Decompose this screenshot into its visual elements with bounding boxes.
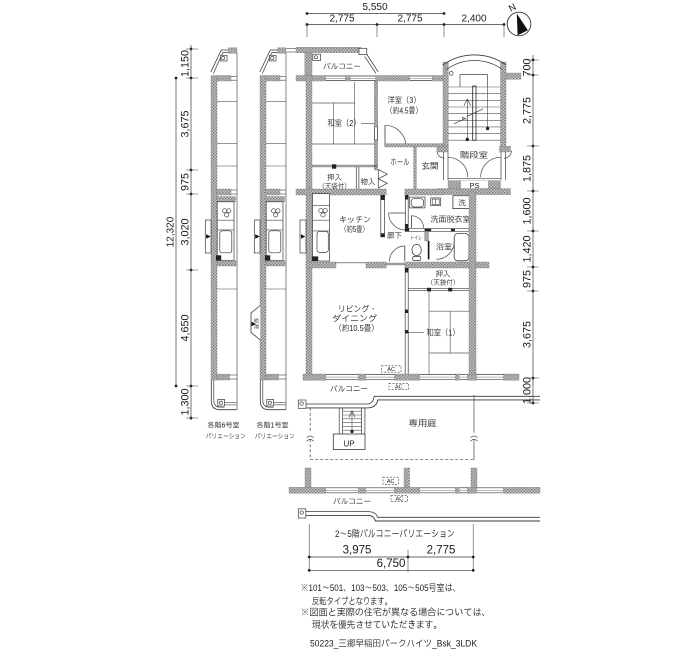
svg-text:和室（1）: 和室（1） <box>427 327 460 340</box>
svg-text:現状を優先させていただきます。: 現状を優先させていただきます。 <box>312 619 442 633</box>
svg-text:4,650: 4,650 <box>180 314 192 341</box>
svg-text:※101〜501、103〜503、105〜505号室は、: ※101〜501、103〜503、105〜505号室は、 <box>301 582 461 596</box>
svg-text:2,775: 2,775 <box>522 97 534 124</box>
svg-text:2,775: 2,775 <box>427 545 456 557</box>
svg-text:バリエーション: バリエーション <box>255 432 295 442</box>
svg-text:3,675: 3,675 <box>180 110 192 137</box>
svg-text:AC: AC <box>387 479 395 485</box>
svg-text:5,550: 5,550 <box>362 2 387 13</box>
svg-text:700: 700 <box>522 58 534 76</box>
svg-text:1,875: 1,875 <box>522 155 534 182</box>
svg-text:トイレ: トイレ <box>410 236 422 243</box>
svg-text:湯: 湯 <box>254 323 259 331</box>
svg-text:UP: UP <box>343 440 354 449</box>
svg-text:3,975: 3,975 <box>343 545 372 557</box>
svg-text:浴室: 浴室 <box>436 242 452 254</box>
svg-text:AC: AC <box>387 367 395 373</box>
svg-text:バルコニー: バルコニー <box>330 385 368 396</box>
svg-text:（約10.5畳）: （約10.5畳） <box>335 322 379 335</box>
svg-text:AC: AC <box>395 385 403 391</box>
svg-text:（約5畳）: （約5畳） <box>341 224 369 236</box>
svg-text:50223_三郷早稲田パークハイツ_Bsk_3LDK: 50223_三郷早稲田パークハイツ_Bsk_3LDK <box>310 637 477 651</box>
svg-text:専用庭: 専用庭 <box>409 417 437 431</box>
svg-text:（約4.5畳）: （約4.5畳） <box>386 105 422 118</box>
svg-text:バリエーション: バリエーション <box>206 432 246 442</box>
svg-text:洗面脱衣室: 洗面脱衣室 <box>431 214 471 226</box>
svg-text:1,600: 1,600 <box>522 197 534 224</box>
svg-text:3,675: 3,675 <box>522 321 534 348</box>
svg-text:物入: 物入 <box>361 178 376 189</box>
svg-text:各階6号室: 各階6号室 <box>208 422 240 432</box>
svg-text:廊下: 廊下 <box>387 231 402 242</box>
svg-text:1,300: 1,300 <box>180 388 192 415</box>
svg-text:2,775: 2,775 <box>329 14 354 25</box>
svg-text:和室（2）: 和室（2） <box>328 117 361 130</box>
svg-text:1,420: 1,420 <box>522 235 534 262</box>
svg-text:2,400: 2,400 <box>461 14 486 25</box>
svg-text:バルコニー: バルコニー <box>323 62 361 73</box>
svg-text:各階1号室: 各階1号室 <box>257 422 289 432</box>
svg-text:ホール: ホール <box>391 156 410 169</box>
svg-text:バルコニー: バルコニー <box>333 497 371 508</box>
svg-text:975: 975 <box>180 173 192 191</box>
svg-text:（天袋付）: （天袋付） <box>427 279 459 289</box>
svg-text:3,020: 3,020 <box>180 218 192 245</box>
svg-text:2,775: 2,775 <box>397 14 422 25</box>
svg-text:1,150: 1,150 <box>180 50 192 77</box>
svg-text:AC: AC <box>396 497 404 503</box>
svg-text:2〜5階バルコニーバリエーション: 2〜5階バルコニーバリエーション <box>335 528 455 542</box>
svg-text:洗: 洗 <box>458 198 466 209</box>
svg-text:玄関: 玄関 <box>421 160 438 173</box>
svg-text:975: 975 <box>522 270 534 288</box>
svg-text:階段室: 階段室 <box>460 149 489 162</box>
svg-text:12,320: 12,320 <box>166 216 177 247</box>
svg-text:6,750: 6,750 <box>377 558 406 570</box>
